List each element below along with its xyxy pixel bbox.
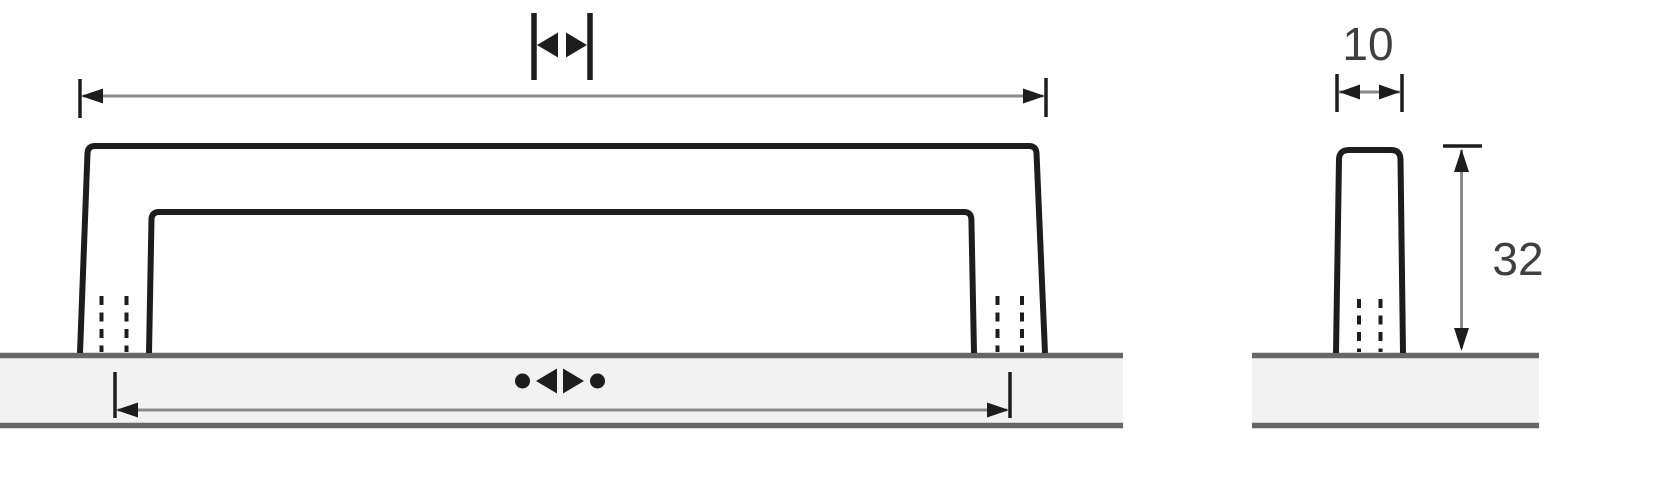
panel-side-fill xyxy=(1252,353,1539,428)
height-dimension-value: 32 xyxy=(1492,233,1543,285)
hole-center-icon-right-dot xyxy=(590,374,605,389)
screw-hole-left xyxy=(102,296,127,352)
width-dim-left-arrow-icon xyxy=(1339,85,1360,100)
overall-length-right-arrow-icon xyxy=(1023,89,1045,104)
height-dim-up-arrow-icon xyxy=(1454,149,1469,172)
overall-length-left-arrow-icon xyxy=(81,89,103,104)
drawing-canvas: 10 32 xyxy=(0,0,1655,480)
handle-side-view xyxy=(1336,150,1403,353)
handle-front-inner-profile xyxy=(149,212,974,353)
height-dimension: 32 xyxy=(1443,146,1544,351)
screw-hole-side xyxy=(1359,299,1381,352)
width-dimension-value: 10 xyxy=(1342,18,1393,70)
mounting-panel-side xyxy=(1252,353,1539,428)
mounting-panel-front xyxy=(0,353,1123,428)
screw-hole-right xyxy=(998,296,1023,352)
panel-front-fill xyxy=(0,353,1123,428)
hole-center-icon-left-dot xyxy=(515,374,530,389)
overall-length-icon-left-triangle xyxy=(537,33,558,58)
width-dim-right-arrow-icon xyxy=(1379,85,1400,100)
width-dimension: 10 xyxy=(1337,18,1402,112)
handle-front-view xyxy=(80,146,1045,353)
handle-side-profile xyxy=(1336,150,1403,353)
height-dim-down-arrow-icon xyxy=(1454,328,1469,351)
overall-length-icon-right-triangle xyxy=(566,33,587,58)
handle-dimension-drawing: 10 32 xyxy=(0,0,1655,480)
handle-front-outer-profile xyxy=(80,146,1045,353)
overall-length-dimension xyxy=(80,78,1046,118)
overall-length-icon xyxy=(534,13,590,80)
